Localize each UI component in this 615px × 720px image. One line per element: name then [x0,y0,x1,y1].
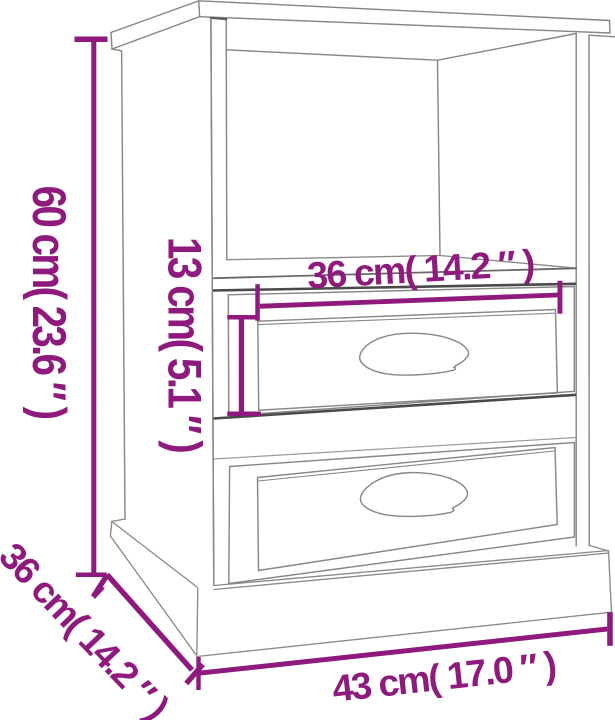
svg-text:13 cm( 5.1 ″ ): 13 cm( 5.1 ″ ) [158,237,211,452]
svg-text:60 cm( 23.6 ″ ): 60 cm( 23.6 ″ ) [22,186,75,419]
